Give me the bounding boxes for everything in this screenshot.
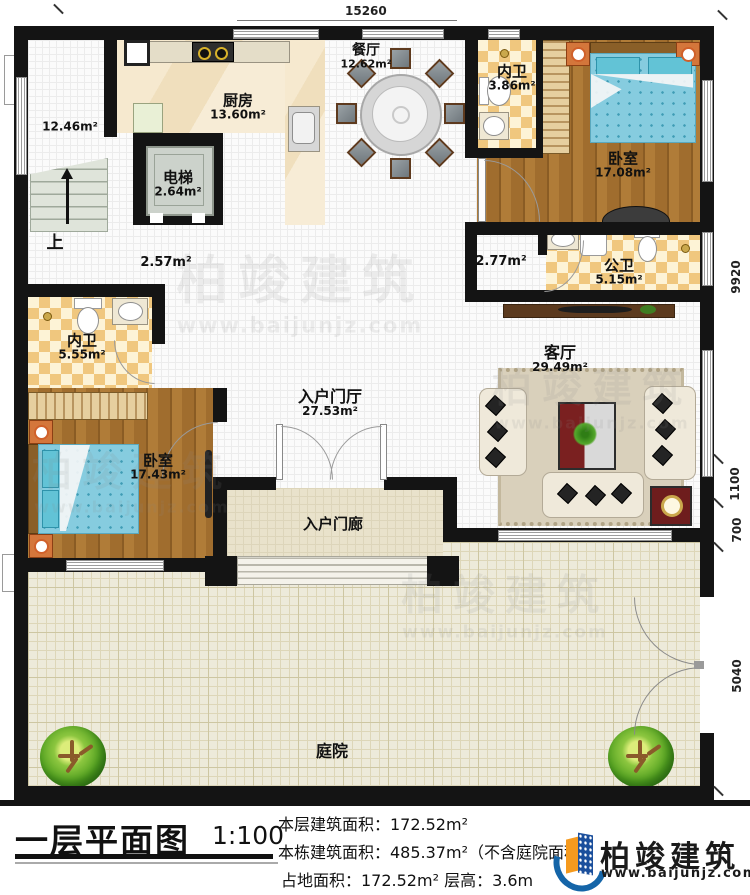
room-name: 客厅 [532, 344, 588, 361]
nightstand-lamp [681, 47, 696, 62]
wardrobe-left [28, 392, 148, 420]
bed-pillow [42, 490, 59, 528]
bath-left-label: 内卫 5.55m² [58, 332, 105, 361]
bed-pillow [42, 450, 59, 488]
dining-chair [390, 48, 411, 69]
stairs-arrow-shaft [66, 178, 69, 224]
wall-entry-bottom-left [213, 477, 276, 490]
company-logo-url: www.baijunjz.com [601, 866, 750, 881]
dim-right-9920: 9920 [729, 260, 743, 293]
up-label: 上 [47, 234, 64, 252]
fridge [133, 103, 163, 133]
wall-stair-kitchen [104, 40, 117, 137]
area-text: 2.57m² [140, 256, 191, 270]
entry-hall-label: 入户门厅 27.53m² [298, 388, 362, 418]
stove-burner [198, 47, 211, 60]
tv-living [558, 306, 632, 313]
wall-porch-right [443, 477, 457, 532]
lamp-pull [500, 49, 509, 58]
room-name: 厨房 [210, 92, 266, 108]
porch-steps [237, 556, 429, 585]
dim-tick [713, 542, 724, 553]
up-text: 上 [47, 234, 64, 252]
title-block: 一层平面图 1:100 本层建筑面积：172.52m² 本栋建筑面积：485.3… [0, 806, 750, 895]
window-right-bedroom [702, 80, 713, 182]
room-name: 餐厅 [340, 44, 391, 59]
room-name: 庭院 [316, 742, 348, 759]
nightstand-lamp [571, 47, 586, 62]
room-name: 内卫 [488, 63, 535, 79]
toilet-bowl [77, 307, 99, 334]
room-area: 29.49m² [532, 361, 588, 374]
stat-floor-area: 本层建筑面积：172.52m² [278, 811, 468, 835]
bed-pillow [596, 57, 640, 75]
wall-bath-top-bottom [465, 148, 543, 158]
dim-tick [713, 498, 724, 509]
dim-right-5040: 5040 [730, 659, 744, 692]
room-area: 5.55m² [58, 349, 105, 362]
stairwell-area-label: 12.46m² [42, 121, 98, 134]
tree [608, 726, 674, 788]
room-area: 17.08m² [595, 167, 651, 180]
courtyard-gate-mullion [694, 661, 704, 669]
title-underline-thin [15, 862, 278, 864]
window-right-living [702, 350, 713, 477]
window-left-stair [16, 77, 27, 175]
dim-right-1100: 1100 [728, 467, 742, 500]
room-name: 入户门廊 [303, 516, 363, 532]
kitchen-sink [292, 112, 315, 144]
dim-top: 15260 [345, 4, 387, 18]
bath-left-sink [118, 302, 143, 321]
bath-top-sink [483, 116, 505, 136]
nightstand-lamp [34, 425, 49, 440]
side-table-medallion [661, 495, 683, 517]
window-bedroom-left-bottom [66, 560, 164, 571]
nightstand-lamp [34, 539, 49, 554]
dim-right-700: 700 [730, 517, 744, 542]
stove-burner [215, 47, 228, 60]
room-name: 卧室 [130, 452, 186, 468]
window-top-3 [488, 29, 520, 39]
area-text: 2.77m² [475, 255, 526, 269]
stairs-arrow-head [61, 168, 73, 179]
dim-tick [717, 10, 728, 21]
dining-table-center [392, 106, 410, 124]
kitchen-label: 厨房 13.60m² [210, 92, 266, 121]
dim-tick [713, 786, 724, 797]
lamp-pull [43, 312, 52, 321]
elevator-label: 电梯 2.64m² [154, 169, 201, 198]
window-top-1 [233, 29, 319, 39]
bedroom-right-label: 卧室 17.08m² [595, 150, 651, 179]
dim-top-line [237, 20, 457, 21]
wall-bath-top-right [536, 40, 543, 150]
room-area: 12.62m² [340, 59, 391, 71]
wall-dining-bath [465, 40, 478, 152]
wall-courtyard-bottom [14, 786, 714, 800]
scale-label: 1:100 [212, 821, 284, 850]
dining-chair [444, 103, 465, 124]
room-area: 2.64m² [154, 186, 201, 199]
room-name: 电梯 [154, 169, 201, 185]
courtyard-label: 庭院 [316, 742, 348, 759]
room-name: 公卫 [595, 257, 642, 273]
window-top-2 [362, 29, 444, 39]
room-area: 17.43m² [130, 469, 186, 482]
window-right-bath [702, 232, 713, 286]
wall-bath-left-right [152, 284, 165, 344]
room-area: 13.60m² [210, 109, 266, 122]
floor-plan-page: 12.46m² 上 厨房 13.60m² 电梯 2.64m² 餐厅 12.62m… [0, 0, 750, 895]
hall-left-label: 2.57m² [140, 256, 191, 270]
bath-top-label: 内卫 3.86m² [488, 63, 535, 92]
wall-bedroom-right-bottom [465, 222, 714, 235]
wall-bath-left-top [14, 284, 165, 297]
porch-stub-right [427, 556, 459, 586]
room-name: 内卫 [58, 332, 105, 348]
room-name: 卧室 [595, 150, 651, 166]
company-logo-icon [552, 830, 598, 888]
kitchen-duct [124, 40, 150, 66]
bath-public-label: 公卫 5.15m² [595, 257, 642, 286]
dining-label: 餐厅 12.62m² [340, 44, 391, 71]
plant-on-cabinet [640, 305, 656, 314]
coffee-table-plant [573, 422, 597, 446]
hall-right-label: 2.77m² [475, 255, 526, 269]
stat-building-area: 本栋建筑面积：485.37m²（不含庭院面积） [278, 839, 596, 863]
bedroom-left-label: 卧室 17.43m² [130, 452, 186, 481]
elevator-door-jamb [192, 213, 205, 223]
lamp-pull [681, 244, 690, 253]
porch-stub-left [205, 556, 237, 586]
wall-bedroom-left-right-a [213, 388, 227, 422]
area-text: 12.46m² [42, 121, 98, 134]
porch-label: 入户门廊 [303, 516, 363, 532]
dim-tick [713, 454, 724, 465]
elevator-door-jamb [150, 213, 163, 223]
tree [40, 726, 106, 788]
dining-chair [336, 103, 357, 124]
stat-land-area: 占地面积：172.52m² 层高：3.6m [281, 867, 533, 891]
room-area: 27.53m² [298, 405, 362, 418]
room-name: 入户门厅 [298, 388, 362, 405]
title-underline-thick [15, 854, 273, 859]
dining-chair [390, 158, 411, 179]
window-living-bottom [498, 530, 672, 541]
dim-tick [53, 4, 64, 15]
living-label: 客厅 29.49m² [532, 344, 588, 374]
room-area: 3.86m² [488, 80, 535, 93]
wall-bath-public-bottom [465, 290, 714, 302]
room-area: 5.15m² [595, 274, 642, 287]
